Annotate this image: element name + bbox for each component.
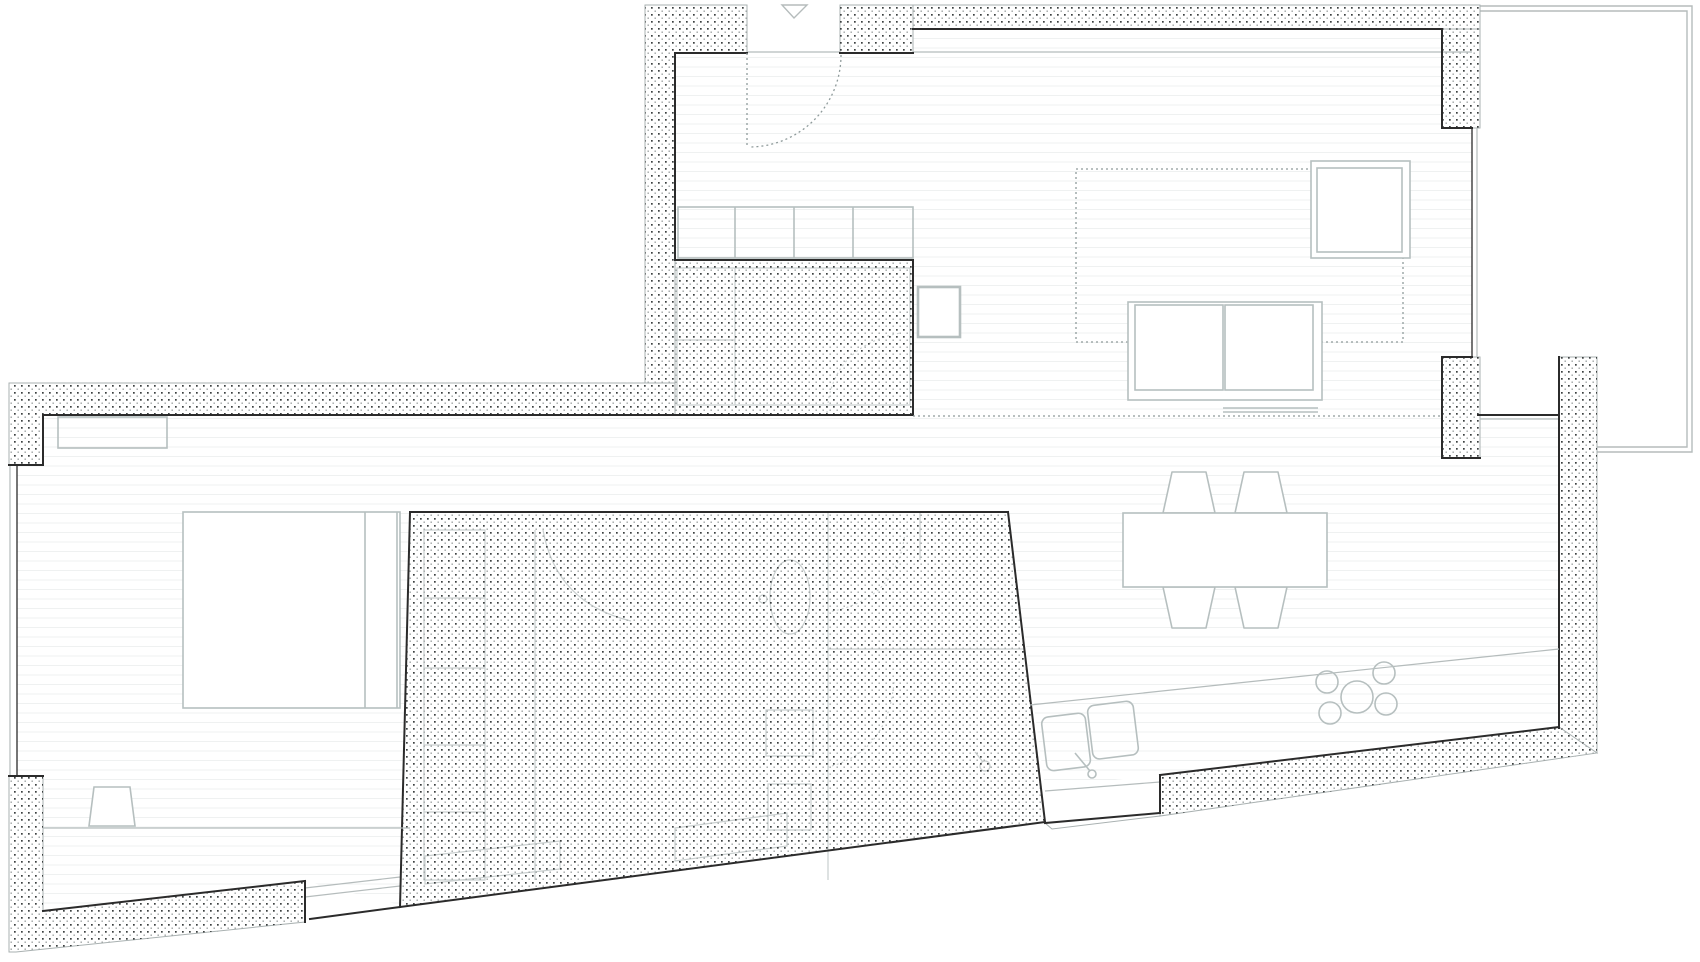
wall-top-parapet (913, 5, 1480, 29)
armchair (1311, 161, 1410, 258)
wall-face (310, 907, 400, 919)
floor-plan-canvas (0, 0, 1700, 962)
shaft-room (675, 260, 913, 415)
side-table (918, 287, 960, 337)
wall-pier-mid (1442, 357, 1480, 458)
dining-chair (1163, 472, 1215, 513)
dining-table (1123, 513, 1327, 587)
entrance-marker-triangle (782, 5, 807, 18)
stool (89, 787, 135, 826)
dining-chair (1235, 472, 1287, 513)
dining-chair (1163, 587, 1215, 628)
toilet (770, 560, 810, 634)
floor-plan-drawing (0, 0, 1700, 962)
wall-top-entrance-right (840, 5, 913, 53)
wall-pier-upper (1442, 29, 1480, 128)
dining-chair (1235, 587, 1287, 628)
wall-right (1559, 357, 1597, 753)
bed (183, 512, 400, 708)
